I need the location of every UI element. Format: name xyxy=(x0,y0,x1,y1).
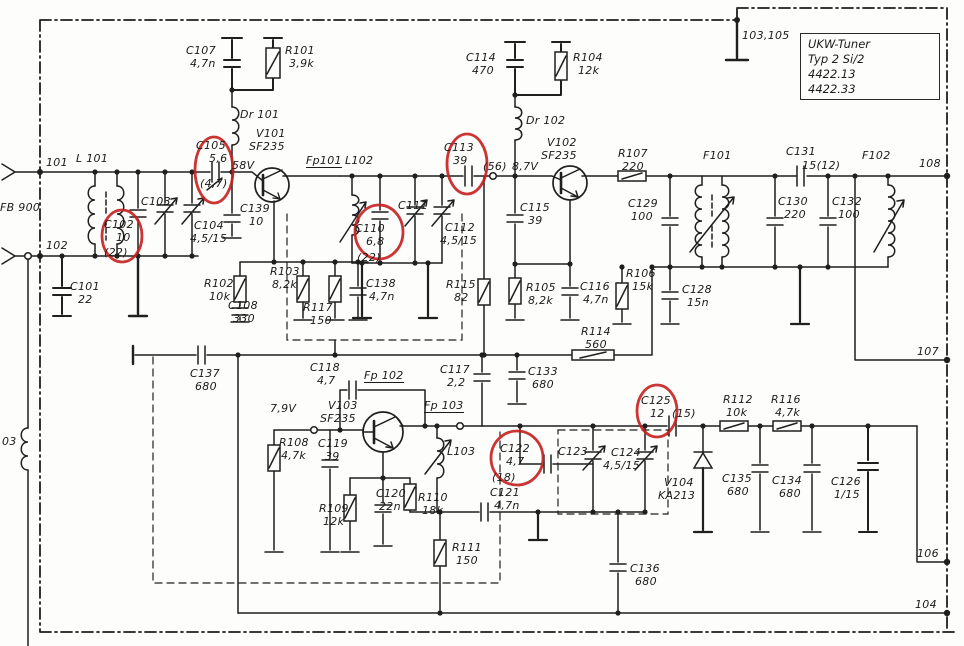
highlight-ellipse xyxy=(355,205,403,259)
highlight-ellipse xyxy=(637,385,677,437)
title-box-name: UKW-Tuner xyxy=(808,37,939,52)
schematic-page: C1074,7nR1013,9kDr 101V101SF235C1055,6(4… xyxy=(0,0,964,646)
highlight-ellipse xyxy=(195,137,233,203)
antenna-input xyxy=(2,164,40,646)
title-box-number-1: 4422.13 xyxy=(808,67,939,82)
title-box: UKW-Tuner Typ 2 Si/2 4422.13 4422.33 xyxy=(800,33,940,100)
highlight-ellipse xyxy=(102,210,142,262)
highlight-ellipse xyxy=(447,134,487,194)
title-box-number-2: 4422.33 xyxy=(808,82,939,97)
junction-dots xyxy=(37,17,950,616)
shield-box-lines xyxy=(153,214,668,583)
module-boundary-lines xyxy=(40,8,958,632)
highlight-ellipse xyxy=(491,431,543,485)
title-box-type: Typ 2 Si/2 xyxy=(808,52,939,67)
